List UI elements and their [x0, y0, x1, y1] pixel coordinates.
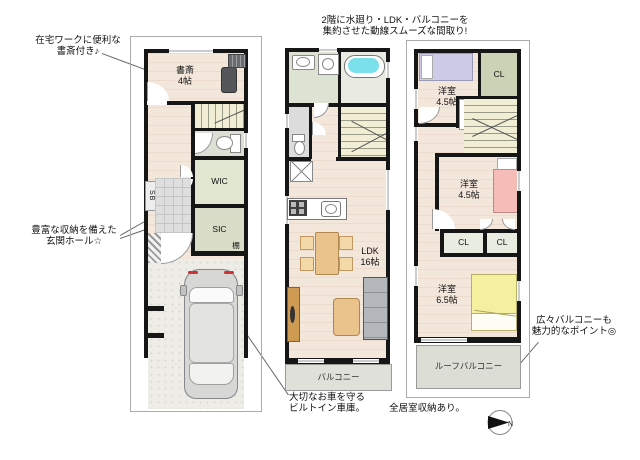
- dining-table-icon: [315, 232, 339, 275]
- pillow-icon: [421, 55, 433, 79]
- stove-burner: [299, 209, 304, 214]
- closet-label: CL: [497, 238, 508, 248]
- stove-burner: [291, 202, 296, 207]
- stair-arrow: [214, 107, 244, 123]
- study-label: 書斎 4帖: [165, 65, 205, 87]
- window: [414, 89, 418, 109]
- closet-3f-mid-right: CL: [487, 233, 517, 253]
- bed-icon-pink: [493, 169, 519, 213]
- wic-label: WIC: [211, 177, 228, 187]
- compass-icon: N: [486, 409, 516, 437]
- bedroom3-label: 洋室 6.5帖: [425, 284, 469, 306]
- closet-3f-top: CL: [481, 53, 517, 96]
- stairs-1f: [195, 104, 244, 128]
- wall-stub: [144, 306, 164, 311]
- bed-icon-yellow: [471, 274, 517, 331]
- wall: [440, 253, 521, 257]
- vanity-sink-bowl: [296, 57, 310, 67]
- flow-note: 2階に水廻り・LDK・バルコニーを 集約させた動線スムーズな間取り!: [310, 15, 480, 38]
- car-mirror: [236, 285, 243, 296]
- closet-label: CL: [458, 238, 469, 248]
- stairs-2f: [341, 107, 386, 157]
- window: [386, 170, 390, 210]
- balcony: バルコニー: [285, 364, 392, 391]
- washer-drum: [322, 58, 334, 70]
- door-opening: [147, 101, 167, 105]
- wall: [414, 49, 521, 53]
- chair-icon: [339, 257, 353, 271]
- window: [414, 127, 418, 141]
- chair-icon: [300, 257, 314, 271]
- stair-arrow: [472, 114, 517, 137]
- window: [244, 133, 248, 148]
- balcony-note: 広々バルコニーも 魅力的なポイント◎: [520, 315, 628, 338]
- bookshelf-icon: [228, 54, 246, 68]
- kitchen-sink-bowl: [325, 204, 337, 214]
- storage-note: 豊富な収納を備えた 玄関ホール☆: [22, 225, 126, 248]
- entry-floor: [155, 178, 191, 233]
- balcony-door: [421, 338, 467, 342]
- roof-balcony-label: ルーフバルコニー: [435, 362, 502, 372]
- window: [517, 281, 521, 301]
- refrigerator-space: [290, 161, 313, 182]
- wall-stub: [144, 333, 164, 338]
- shelf-label-1f: 棚: [228, 241, 244, 250]
- wall: [338, 107, 341, 159]
- porch-step: [148, 233, 161, 263]
- toilet-icon: [294, 141, 305, 155]
- wall: [336, 157, 390, 161]
- toilet-icon: [216, 136, 233, 150]
- floor-plan-sheet: 在宅ワークに便利な 書斎付き♪ 2階に水廻り・LDK・バルコニーを 集約させた動…: [0, 0, 640, 460]
- plan-2f: LDK 16帖 バルコニー: [283, 46, 393, 390]
- window: [285, 114, 289, 128]
- window: [414, 266, 418, 286]
- window: [386, 62, 390, 78]
- stair-arrow: [472, 118, 517, 141]
- bathtub-water: [348, 58, 379, 73]
- stair-arrow: [351, 131, 386, 153]
- car-taillight: [188, 271, 198, 274]
- car-taillight: [224, 271, 234, 274]
- garage-note: 大切なお車を守る ビルトイン車庫。: [284, 392, 370, 415]
- balcony-door: [298, 359, 324, 363]
- ldk-label: LDK 16帖: [353, 246, 387, 268]
- stove-burner: [299, 202, 304, 207]
- wic-room: WIC: [195, 160, 244, 204]
- shoebox-label: SB: [148, 190, 155, 201]
- plan-3f: CL 棚 洋室 4.5帖 洋室 4.5帖 洋室 6.5帖 CL CL: [406, 40, 530, 398]
- window: [517, 171, 521, 191]
- desk-icon: [221, 67, 237, 93]
- stair-arrow: [351, 121, 386, 143]
- bedroom2-label: 洋室 4.5帖: [447, 179, 491, 201]
- wall: [478, 49, 481, 99]
- car-window: [189, 363, 234, 385]
- low-table-icon: [333, 298, 360, 336]
- wall: [435, 153, 521, 157]
- closet-label: CL: [494, 70, 505, 80]
- compass-north-label: N: [508, 421, 513, 428]
- window: [319, 48, 337, 52]
- car-icon: [184, 269, 238, 399]
- stove-burner: [291, 209, 296, 214]
- car-roof: [189, 303, 234, 363]
- tv-icon: [290, 306, 295, 323]
- car-window: [189, 287, 234, 303]
- chair-icon: [339, 236, 353, 250]
- sofa-icon: [363, 277, 388, 340]
- chair-icon: [300, 236, 314, 250]
- closet-3f-mid-left: CL: [444, 233, 483, 253]
- all-rooms-note: 全居室収納あり。: [382, 403, 472, 414]
- wall: [478, 96, 521, 99]
- balcony-label: バルコニー: [317, 373, 359, 383]
- study-note: 在宅ワークに便利な 書斎付き♪: [26, 35, 130, 58]
- plan-1f: 書斎 4帖 WIC SIC 棚 SB: [130, 36, 262, 412]
- stairs-3f: [464, 99, 517, 153]
- wall: [191, 251, 248, 256]
- balcony-door: [353, 359, 379, 363]
- window: [169, 49, 213, 53]
- wall: [456, 96, 481, 99]
- roof-balcony: ルーフバルコニー: [416, 345, 521, 389]
- sic-label: SIC: [212, 225, 226, 235]
- car-mirror: [180, 285, 187, 296]
